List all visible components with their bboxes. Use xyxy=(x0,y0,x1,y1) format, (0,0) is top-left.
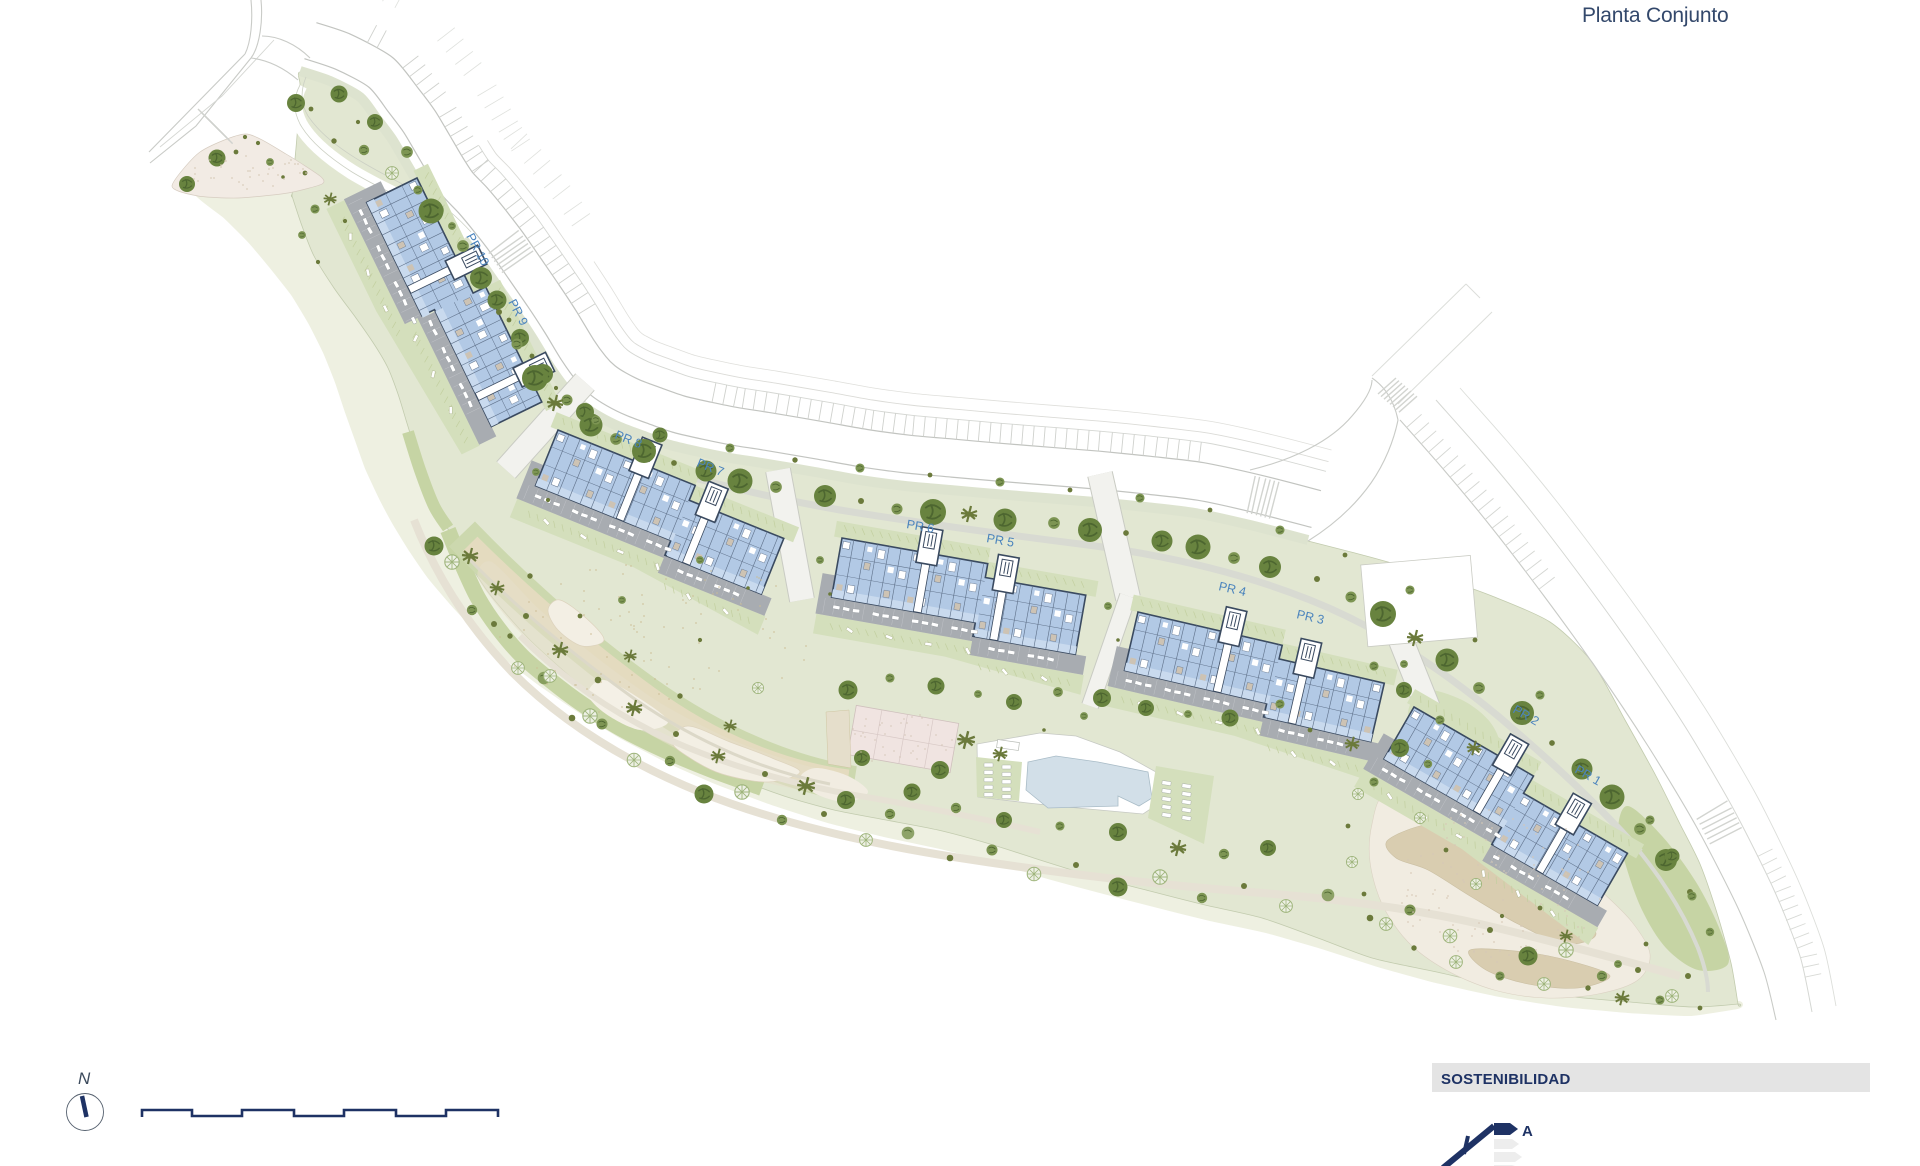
svg-text:SOSTENIBILIDAD: SOSTENIBILIDAD xyxy=(1441,1071,1570,1088)
svg-text:N: N xyxy=(78,1069,91,1088)
svg-text:A: A xyxy=(1522,1123,1533,1140)
svg-text:Planta Conjunto: Planta Conjunto xyxy=(1582,4,1728,27)
